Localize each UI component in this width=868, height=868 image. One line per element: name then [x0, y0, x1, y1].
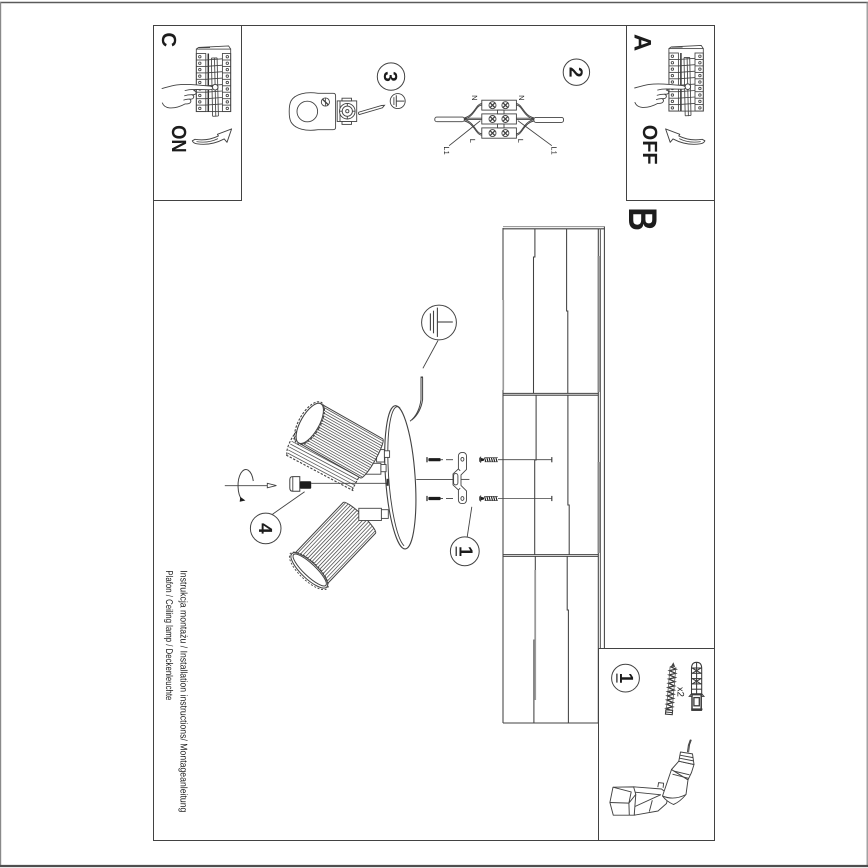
svg-text:Plafon / Ceiling lamp / Decken: Plafon / Ceiling lamp / Deckenleuchte	[163, 570, 174, 700]
svg-text:N: N	[470, 95, 479, 100]
svg-text:C: C	[157, 32, 179, 47]
svg-text:L1: L1	[549, 146, 558, 154]
svg-text:1: 1	[455, 546, 476, 557]
svg-text:N: N	[517, 95, 526, 100]
svg-text:L1: L1	[442, 146, 451, 154]
svg-text:L: L	[516, 139, 525, 143]
svg-text:A: A	[629, 34, 656, 51]
svg-text:OFF: OFF	[638, 125, 661, 165]
svg-text:x2: x2	[674, 687, 685, 697]
svg-text:Instrukcja montażu / Installat: Instrukcja montażu / Installation instru…	[178, 570, 189, 812]
svg-text:ON: ON	[167, 125, 190, 153]
svg-text:3: 3	[379, 71, 400, 82]
svg-text:4: 4	[254, 523, 275, 534]
svg-text:B: B	[620, 207, 664, 231]
svg-text:L: L	[468, 139, 477, 143]
svg-text:1: 1	[615, 673, 636, 684]
svg-text:2: 2	[565, 67, 586, 78]
